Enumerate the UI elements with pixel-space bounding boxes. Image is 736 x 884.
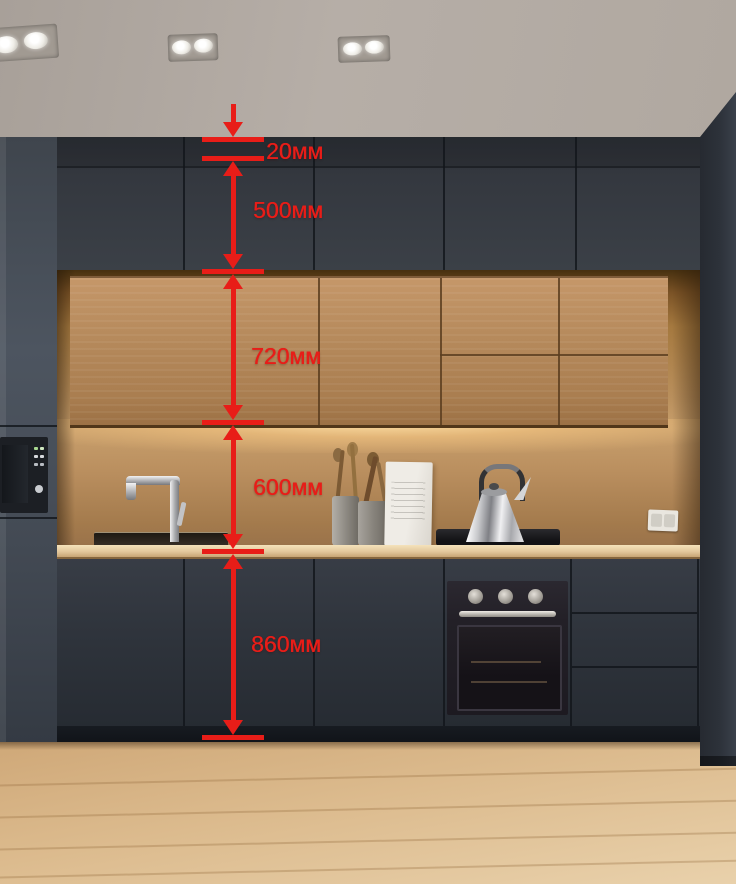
faucet-riser xyxy=(170,480,179,542)
cabinet-seam xyxy=(183,137,185,270)
floor-shadow xyxy=(0,742,736,750)
microwave-button xyxy=(34,463,38,466)
cabinet-seam xyxy=(440,354,668,356)
spotlight-lamp xyxy=(365,40,384,54)
microwave-button xyxy=(40,455,44,458)
cabinet-seam xyxy=(313,137,315,270)
kettle-lid-knob xyxy=(489,483,499,490)
socket xyxy=(664,514,675,527)
cabinet-seam xyxy=(558,278,560,425)
floor-plank-line xyxy=(0,859,736,878)
floor-plank-line xyxy=(0,799,736,818)
cabinet-seam xyxy=(318,278,320,425)
oven-knob xyxy=(528,589,543,604)
microwave-indicator xyxy=(40,447,44,450)
spotlight-lamp xyxy=(0,35,19,54)
ceiling-spotlight-fixture xyxy=(0,24,59,63)
cabinet-floor-shadow xyxy=(700,756,736,766)
cabinet-seam xyxy=(697,558,699,728)
ceiling-spotlight-fixture xyxy=(168,33,219,62)
microwave-dial xyxy=(35,485,43,493)
cabinet-seam xyxy=(0,517,57,519)
spotlight-lamp xyxy=(343,42,362,56)
power-outlet xyxy=(648,509,679,531)
microwave-button xyxy=(40,463,44,466)
oven-door xyxy=(457,625,562,711)
cabinet-seam xyxy=(570,558,572,728)
right-tall-cabinet xyxy=(700,92,736,766)
microwave-button xyxy=(34,455,38,458)
oven-knob xyxy=(498,589,513,604)
cabinet-seam xyxy=(443,137,445,270)
kitchen-dimension-diagram: 20мм 500мм 720мм 600мм 860мм xyxy=(0,0,736,884)
floor-plank-line xyxy=(0,767,736,786)
microwave-window xyxy=(2,445,28,503)
base-dark-cabinets xyxy=(0,556,700,728)
spotlight-lamp xyxy=(23,31,48,50)
floor-plank-line xyxy=(0,831,736,850)
paper-bag xyxy=(384,462,432,547)
built-in-microwave xyxy=(0,437,48,513)
oven xyxy=(447,581,568,715)
oven-rack xyxy=(471,661,541,663)
oven-rack xyxy=(471,681,547,683)
cabinet-seam xyxy=(443,558,445,728)
cabinet-seam xyxy=(575,137,577,270)
drawer-seam xyxy=(572,666,697,668)
oven-handle xyxy=(459,611,556,617)
utensil-crock xyxy=(332,496,359,546)
wood-floor xyxy=(0,742,736,884)
cabinet-seam xyxy=(440,278,442,425)
ceiling-spotlight-fixture xyxy=(338,35,391,63)
socket xyxy=(651,514,662,527)
spotlight-lamp xyxy=(194,38,213,53)
paper-print xyxy=(391,482,426,521)
upper-cabinet-trim xyxy=(0,137,700,168)
faucet-spout-tip xyxy=(126,483,136,500)
countertop xyxy=(57,545,700,559)
ceiling xyxy=(0,0,736,140)
wood-wall-cabinets xyxy=(70,276,668,428)
drawer-seam xyxy=(572,612,697,614)
oven-knob xyxy=(468,589,483,604)
microwave-indicator xyxy=(34,447,38,450)
left-tall-cabinet xyxy=(0,137,57,745)
wood-grain xyxy=(70,278,668,425)
cabinet-seam xyxy=(183,558,185,728)
upper-dark-cabinets xyxy=(0,137,700,270)
spotlight-lamp xyxy=(172,40,191,55)
cabinet-seam xyxy=(313,558,315,728)
cabinet-seam xyxy=(0,425,57,427)
